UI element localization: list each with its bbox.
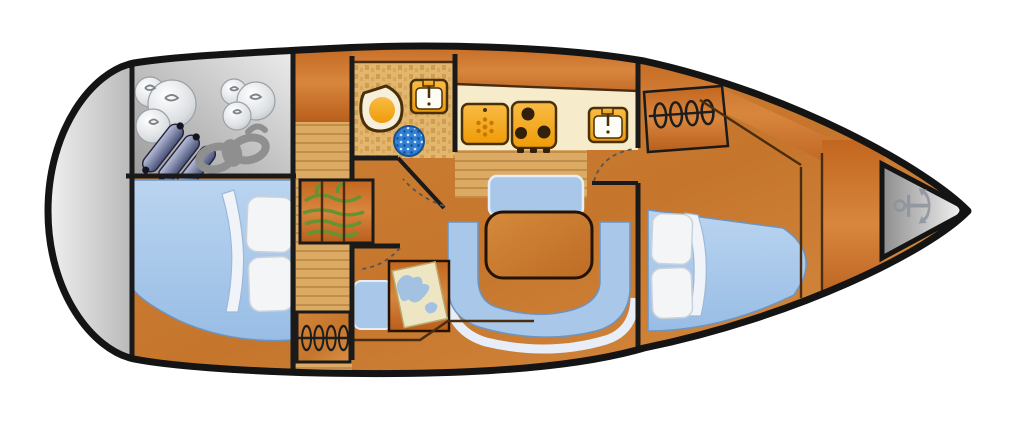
faucet-icon [423, 80, 434, 86]
toilet-bowl [369, 97, 395, 123]
stove [512, 102, 556, 153]
galley-sink [589, 108, 627, 142]
faucet-icon [602, 108, 613, 114]
settee-backrest [489, 176, 583, 216]
nav-seat [354, 281, 392, 329]
deck-column [293, 44, 352, 122]
galley [455, 84, 638, 153]
head-compartment [352, 62, 455, 158]
anchor-icon: ⚓ [884, 184, 942, 229]
boat-floorplan: ⚓ [0, 0, 1024, 422]
fridge [462, 104, 508, 144]
head-sink [411, 80, 447, 113]
shower-seat [394, 126, 424, 156]
boat-floorplan-canvas: ⚓ [0, 0, 1024, 422]
salon-table [486, 212, 592, 278]
